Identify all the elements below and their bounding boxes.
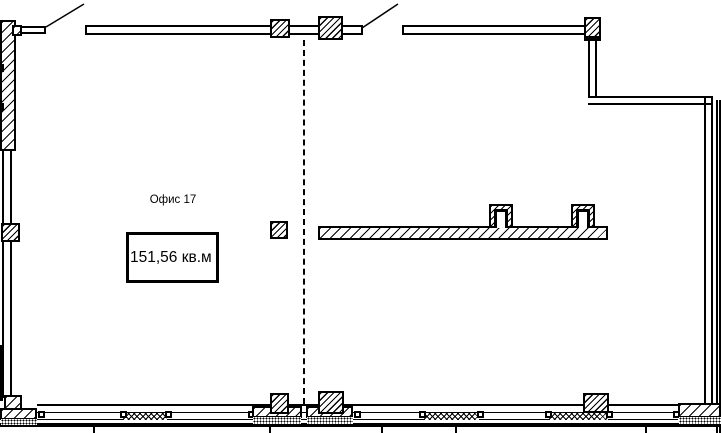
door-swing-line-mid bbox=[362, 4, 398, 28]
room-label: Офис 17 bbox=[138, 194, 208, 208]
floor-plan-canvas: Офис 17 151,56 кв.м bbox=[0, 0, 721, 433]
door-swing-lines bbox=[0, 0, 721, 433]
area-label: 151,56 кв.м bbox=[129, 249, 212, 267]
door-swing-line-left bbox=[46, 4, 84, 27]
area-box: 151,56 кв.м bbox=[126, 232, 219, 283]
